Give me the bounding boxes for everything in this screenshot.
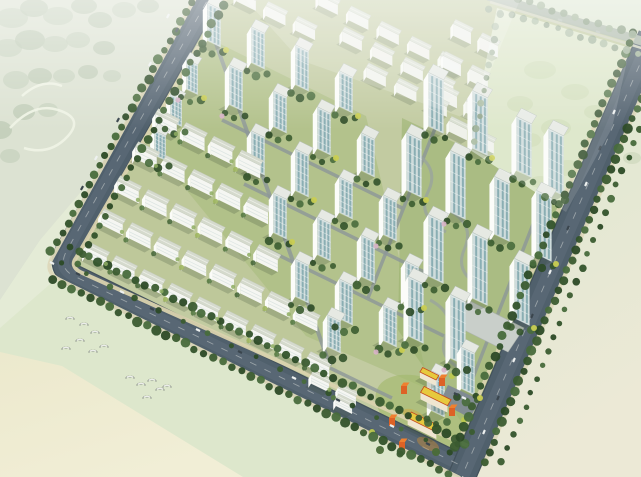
tree xyxy=(111,193,118,200)
tree xyxy=(69,210,76,217)
tree xyxy=(228,364,235,371)
tree xyxy=(517,418,523,424)
tower-end-face xyxy=(531,190,536,262)
tree xyxy=(132,317,142,327)
tree xyxy=(57,280,66,289)
tree xyxy=(104,262,108,266)
tree xyxy=(310,363,319,372)
tree xyxy=(302,365,307,370)
tree xyxy=(169,295,177,303)
tree xyxy=(585,216,593,224)
tree xyxy=(607,195,615,203)
tree xyxy=(340,418,350,428)
tree xyxy=(405,412,412,419)
tree xyxy=(223,246,228,251)
tree xyxy=(241,212,246,217)
tree xyxy=(112,268,120,276)
tree xyxy=(265,383,272,390)
tower-end-face xyxy=(357,235,362,284)
tree xyxy=(551,297,559,305)
tree xyxy=(331,395,336,400)
tree xyxy=(307,304,315,312)
tree xyxy=(136,198,140,202)
tree xyxy=(538,264,546,272)
tree xyxy=(107,284,114,291)
tree xyxy=(75,248,83,256)
tree xyxy=(286,135,293,142)
tree xyxy=(504,445,510,451)
tree xyxy=(368,432,378,442)
tree xyxy=(181,338,191,348)
tree xyxy=(229,343,234,348)
tree xyxy=(253,336,262,345)
tree xyxy=(154,164,158,168)
tree xyxy=(421,344,428,351)
residential-masterplan-aerial-rendering xyxy=(0,0,641,477)
tree xyxy=(318,264,325,271)
tree xyxy=(435,466,443,474)
tree xyxy=(613,143,623,153)
tree xyxy=(254,354,259,359)
tree xyxy=(362,286,370,294)
tree xyxy=(376,446,384,454)
tree xyxy=(453,223,459,229)
tree xyxy=(167,219,172,224)
tree xyxy=(319,351,326,358)
tree xyxy=(510,431,517,438)
tree xyxy=(475,159,481,165)
tree xyxy=(213,199,218,204)
tree xyxy=(246,331,253,338)
tower-end-face xyxy=(291,149,296,198)
tree xyxy=(485,362,493,370)
tree xyxy=(465,303,472,310)
tree xyxy=(398,304,405,311)
tree xyxy=(507,311,517,321)
tree xyxy=(274,352,279,357)
yellow-tree xyxy=(423,197,429,203)
tree xyxy=(340,222,348,230)
tree xyxy=(367,394,374,401)
tree xyxy=(141,281,149,289)
tree xyxy=(205,153,210,158)
tree xyxy=(84,271,89,276)
tree xyxy=(477,382,484,389)
tree xyxy=(386,402,394,410)
tree xyxy=(491,439,498,446)
tree xyxy=(521,281,530,290)
tree xyxy=(475,309,481,315)
tree xyxy=(159,289,163,293)
tree xyxy=(464,412,474,422)
tree xyxy=(163,297,168,302)
tree xyxy=(552,211,559,218)
tree xyxy=(593,196,600,203)
tree xyxy=(219,358,227,366)
tower-end-face xyxy=(291,259,296,304)
tree xyxy=(96,222,102,228)
tree xyxy=(231,285,235,289)
tree xyxy=(288,302,294,308)
tree xyxy=(456,433,465,442)
tree xyxy=(215,317,219,321)
tree xyxy=(107,269,112,274)
tree xyxy=(274,242,282,250)
tree xyxy=(571,246,580,255)
tree xyxy=(78,289,85,296)
tree xyxy=(597,185,604,192)
tree xyxy=(179,265,184,270)
tree xyxy=(351,220,358,227)
tree xyxy=(155,307,161,313)
tree xyxy=(384,350,391,357)
tree xyxy=(415,415,422,422)
tower-end-face xyxy=(379,305,384,348)
tree xyxy=(271,344,275,348)
tree xyxy=(546,220,555,229)
tree xyxy=(534,376,540,382)
tree xyxy=(409,201,416,208)
tree xyxy=(233,167,238,172)
tree xyxy=(465,153,472,160)
tree xyxy=(90,170,99,179)
tree xyxy=(424,416,431,423)
tree xyxy=(181,319,186,324)
tree xyxy=(191,310,196,315)
flowering-tree xyxy=(373,349,378,354)
tree xyxy=(443,418,451,426)
tree xyxy=(209,353,217,361)
tree xyxy=(543,231,550,238)
tree xyxy=(205,330,211,336)
tree xyxy=(401,341,409,349)
tree xyxy=(139,205,144,210)
tree xyxy=(360,429,367,436)
tree xyxy=(60,230,67,237)
tree xyxy=(207,312,215,320)
tree xyxy=(122,270,131,279)
tree xyxy=(520,368,527,375)
tree xyxy=(351,326,359,334)
tree xyxy=(190,346,197,353)
tree xyxy=(497,417,507,427)
tree xyxy=(243,173,251,181)
aerial-rendering-stage xyxy=(0,0,641,477)
tree xyxy=(330,263,336,269)
tree xyxy=(112,132,120,140)
tree xyxy=(463,220,471,228)
tree xyxy=(125,312,132,319)
tower-end-face xyxy=(269,193,274,240)
tree xyxy=(302,379,307,384)
tree xyxy=(174,132,178,136)
tree xyxy=(385,245,392,252)
tree xyxy=(85,252,93,260)
tree xyxy=(350,423,359,432)
tree xyxy=(507,323,515,331)
tree xyxy=(497,458,504,465)
tree xyxy=(134,155,141,162)
tree xyxy=(524,405,530,411)
tree xyxy=(430,136,437,143)
tree xyxy=(630,140,636,146)
tree xyxy=(506,397,515,406)
tree xyxy=(118,184,125,191)
tree xyxy=(399,426,404,431)
tree xyxy=(179,298,187,306)
tree xyxy=(105,302,114,311)
tower-end-face xyxy=(335,177,340,220)
tree xyxy=(545,307,552,314)
tree xyxy=(406,308,415,317)
tree xyxy=(395,242,402,249)
yellow-tree xyxy=(477,395,483,401)
tree xyxy=(102,213,109,220)
tree xyxy=(540,363,545,368)
tree xyxy=(569,257,577,265)
tree xyxy=(264,342,271,349)
tree xyxy=(572,278,580,286)
tree xyxy=(137,144,146,153)
tree xyxy=(207,278,212,283)
tree xyxy=(107,203,113,209)
tree xyxy=(349,381,357,389)
tree xyxy=(417,455,425,463)
cube-wall xyxy=(449,408,455,416)
tree xyxy=(235,292,240,297)
tree xyxy=(406,450,416,460)
tree xyxy=(48,275,57,284)
flowering-tree xyxy=(441,221,446,226)
tree xyxy=(101,152,108,159)
tree xyxy=(373,178,380,185)
tree xyxy=(421,131,429,139)
tree xyxy=(581,226,588,233)
tree xyxy=(151,284,159,292)
tree xyxy=(550,334,556,340)
tree xyxy=(246,338,251,343)
tree xyxy=(459,422,469,432)
tree xyxy=(432,448,440,456)
tree xyxy=(107,143,114,150)
tree xyxy=(442,135,448,141)
tree xyxy=(378,436,387,445)
tree xyxy=(501,407,510,416)
tree xyxy=(528,390,533,395)
tree xyxy=(555,287,563,295)
tree xyxy=(427,460,434,467)
tree xyxy=(123,237,128,242)
tree xyxy=(353,281,362,290)
yellow-tree xyxy=(531,325,537,331)
tree xyxy=(422,282,428,288)
tree xyxy=(145,159,153,167)
tree xyxy=(288,196,294,202)
tree xyxy=(510,387,519,396)
tree xyxy=(559,276,568,285)
tree xyxy=(74,261,81,268)
tree xyxy=(310,154,316,160)
tree xyxy=(441,428,451,438)
tree xyxy=(290,320,295,325)
tree xyxy=(319,159,325,165)
tree xyxy=(486,449,494,457)
tree xyxy=(219,324,224,329)
tree xyxy=(332,218,338,224)
tree xyxy=(285,390,293,398)
tree xyxy=(96,297,105,306)
tree xyxy=(320,370,327,377)
tree xyxy=(563,266,570,273)
tree xyxy=(607,165,615,173)
tree xyxy=(67,244,74,251)
tree xyxy=(81,191,88,198)
tree xyxy=(195,233,200,238)
tree xyxy=(91,232,98,239)
tree xyxy=(338,378,348,388)
tower-end-face xyxy=(357,133,362,178)
tree xyxy=(275,137,282,144)
tree xyxy=(350,403,356,409)
tree xyxy=(197,309,206,318)
tree xyxy=(397,447,406,456)
tree xyxy=(524,270,533,279)
tree xyxy=(424,438,429,443)
tree xyxy=(177,139,182,144)
tree xyxy=(433,421,439,427)
tree xyxy=(151,251,156,256)
tower-end-face xyxy=(445,150,450,220)
tree xyxy=(209,191,213,195)
tree xyxy=(331,323,338,330)
tree xyxy=(257,376,265,384)
tree xyxy=(59,260,64,265)
tower-end-face xyxy=(379,195,384,242)
tree xyxy=(65,220,73,228)
tree xyxy=(85,241,92,248)
tree xyxy=(185,185,190,190)
tree xyxy=(238,367,245,374)
tree xyxy=(626,155,632,161)
tree xyxy=(175,257,179,261)
tree xyxy=(602,175,612,185)
tree xyxy=(496,244,504,252)
tree xyxy=(339,354,347,362)
tree xyxy=(253,179,259,185)
tree xyxy=(251,260,256,265)
tree xyxy=(277,366,283,372)
tree xyxy=(534,251,542,259)
tower-end-face xyxy=(445,294,450,366)
tree xyxy=(157,171,162,176)
yellow-tree xyxy=(553,261,559,267)
tree xyxy=(512,302,520,310)
tree xyxy=(265,237,274,246)
tree xyxy=(497,343,504,350)
tree xyxy=(611,154,621,164)
tree xyxy=(481,458,489,466)
tree xyxy=(450,442,460,452)
tree xyxy=(235,328,243,336)
yellow-tree xyxy=(333,155,339,161)
tree xyxy=(265,131,272,138)
tree xyxy=(293,396,301,404)
cube-wall xyxy=(439,378,445,386)
tree xyxy=(313,404,321,412)
tree xyxy=(161,331,171,341)
tree xyxy=(516,328,523,335)
tree xyxy=(602,209,609,216)
tree xyxy=(229,159,233,163)
tree xyxy=(387,442,396,451)
tree xyxy=(282,351,290,359)
tree xyxy=(225,323,233,331)
tree xyxy=(492,427,500,435)
tree xyxy=(53,238,61,246)
tree xyxy=(507,242,515,250)
tree xyxy=(93,257,102,266)
tree xyxy=(539,241,547,249)
tree xyxy=(247,253,251,257)
tree xyxy=(579,265,587,273)
flowering-tree xyxy=(373,243,378,248)
tree xyxy=(321,409,331,419)
tree xyxy=(374,285,381,292)
tree xyxy=(430,286,437,293)
flowering-tree xyxy=(441,367,446,372)
tree xyxy=(135,283,140,288)
tree xyxy=(304,399,311,406)
tree xyxy=(262,306,267,311)
tree xyxy=(590,206,598,214)
tree xyxy=(200,350,207,357)
tree xyxy=(480,372,488,380)
yellow-tree xyxy=(289,239,295,245)
tree xyxy=(584,251,590,257)
cube-wall xyxy=(401,386,407,394)
tree xyxy=(131,295,138,302)
tree xyxy=(526,345,536,355)
tree xyxy=(188,302,198,312)
tree xyxy=(375,397,385,407)
tower-end-face xyxy=(313,217,318,262)
tree xyxy=(597,224,603,230)
tree xyxy=(86,294,94,302)
tree xyxy=(75,200,84,209)
tree xyxy=(363,181,369,187)
tree xyxy=(96,162,103,169)
tree xyxy=(287,312,291,316)
tree xyxy=(45,246,54,255)
tree xyxy=(523,357,532,366)
tree xyxy=(441,284,449,292)
tree xyxy=(530,260,537,267)
tree xyxy=(562,307,568,313)
tree xyxy=(331,412,340,421)
tree xyxy=(517,292,524,299)
tree xyxy=(541,316,549,324)
tree xyxy=(115,309,122,316)
tree xyxy=(400,196,406,202)
tree xyxy=(67,285,76,294)
tree xyxy=(151,325,161,335)
tree xyxy=(452,368,461,377)
tree xyxy=(264,177,271,184)
tree xyxy=(410,346,418,354)
tree xyxy=(292,356,299,363)
tree xyxy=(246,372,255,381)
tree xyxy=(567,292,573,298)
